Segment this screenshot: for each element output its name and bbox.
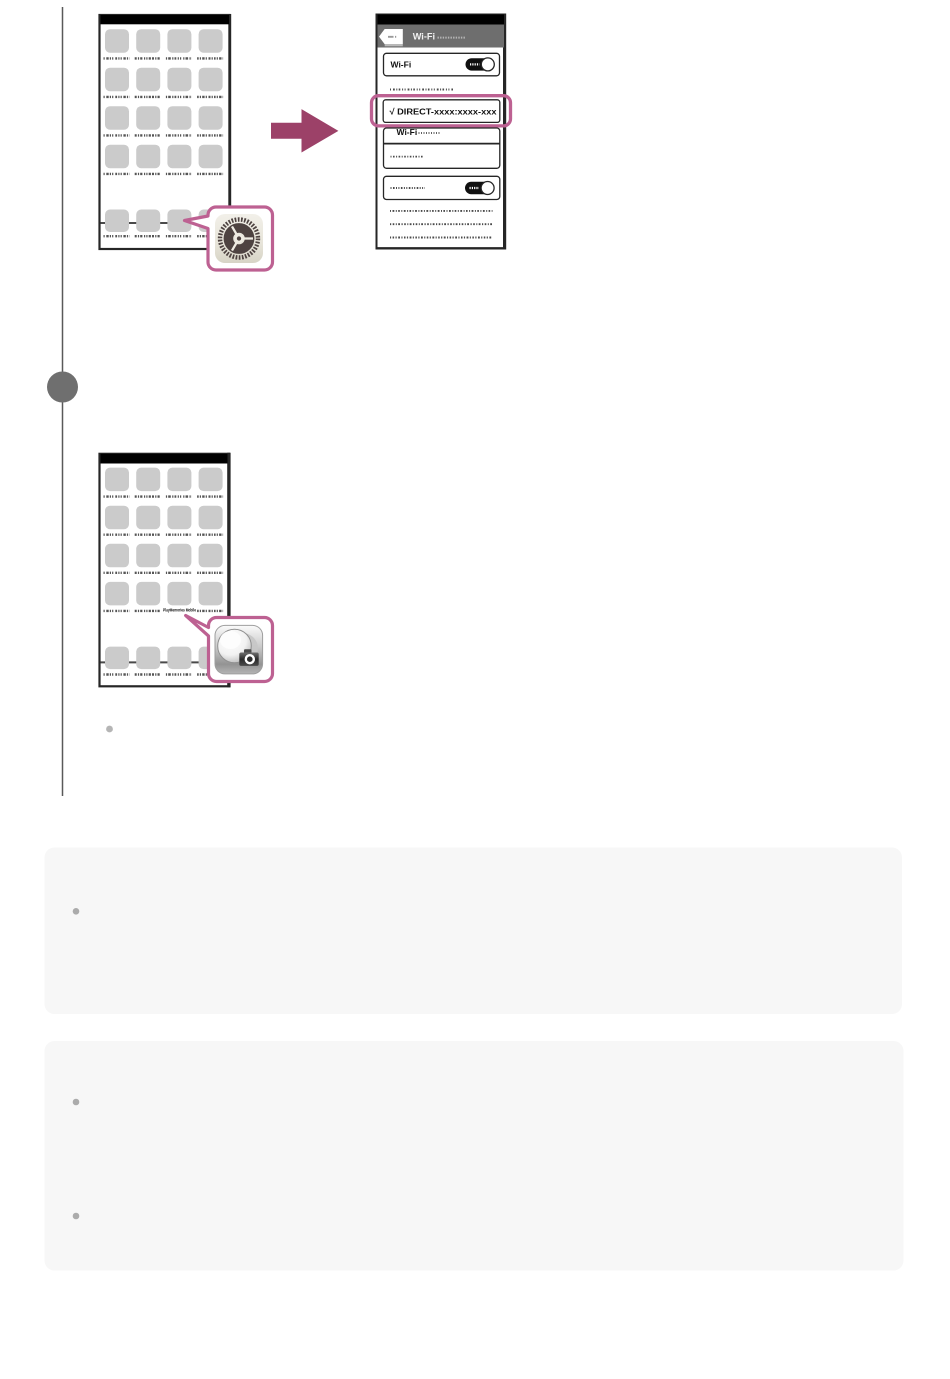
- svg-text:Wi-Fi: Wi-Fi: [391, 60, 412, 70]
- svg-text:Wi-Fi: Wi-Fi: [413, 32, 435, 42]
- svg-text:Wi-Fi: Wi-Fi: [397, 127, 418, 137]
- svg-text:√ DIRECT-xxxx:xxxx-xxx: √ DIRECT-xxxx:xxxx-xxx: [390, 107, 497, 117]
- svg-text:PlayMemories Mobile: PlayMemories Mobile: [163, 607, 196, 612]
